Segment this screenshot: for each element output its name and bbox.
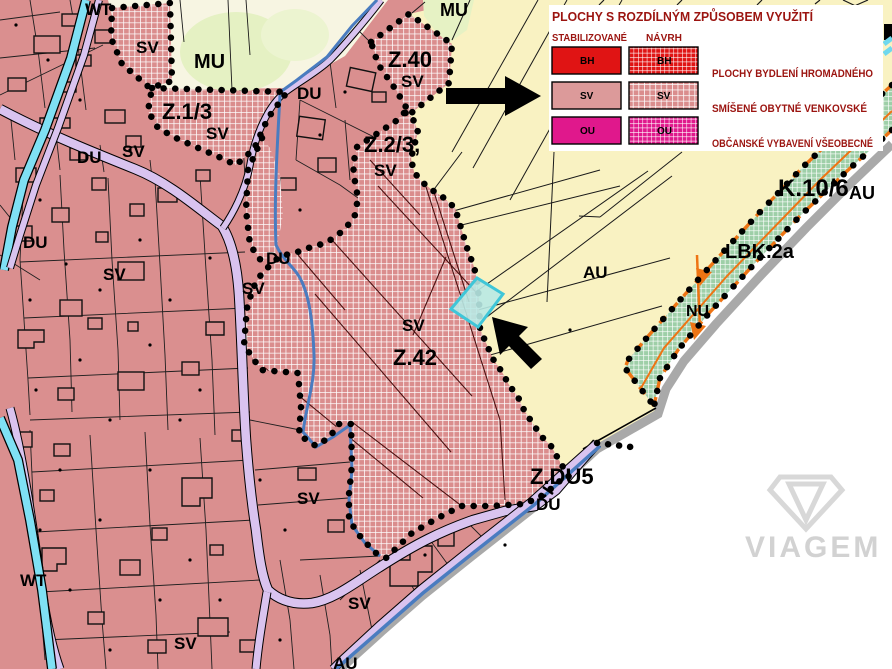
svg-text:SV: SV [297, 489, 320, 508]
svg-text:SV: SV [401, 72, 424, 91]
svg-text:PLOCHY S ROZDÍLNÝM ZPŮSOBEM VY: PLOCHY S ROZDÍLNÝM ZPŮSOBEM VYUŽITÍ [552, 8, 814, 24]
svg-text:MU: MU [440, 0, 468, 20]
svg-text:K.10/6: K.10/6 [778, 175, 849, 202]
svg-text:DU: DU [536, 495, 561, 514]
svg-text:STABILIZOVANÉ: STABILIZOVANÉ [552, 31, 627, 44]
svg-text:SV: SV [122, 142, 145, 161]
svg-text:SV: SV [657, 91, 671, 102]
svg-text:LBK.2a: LBK.2a [725, 241, 795, 263]
svg-text:MU: MU [194, 51, 225, 73]
svg-text:DU: DU [297, 84, 322, 103]
svg-text:SV: SV [174, 634, 197, 653]
svg-text:Z.DU5: Z.DU5 [530, 464, 594, 489]
svg-text:SMÍŠENÉ OBYTNÉ VENKOVSKÉ: SMÍŠENÉ OBYTNÉ VENKOVSKÉ [712, 102, 867, 115]
svg-text:Z.40: Z.40 [388, 47, 432, 72]
svg-text:Z.2/3,: Z.2/3, [364, 132, 420, 157]
svg-text:NÁVRH: NÁVRH [646, 31, 682, 44]
svg-text:Z.42: Z.42 [393, 345, 437, 370]
svg-text:SV: SV [402, 316, 425, 335]
svg-text:SV: SV [103, 265, 126, 284]
svg-text:OBČANSKÉ VYBAVENÍ VŠEOBECNÉ: OBČANSKÉ VYBAVENÍ VŠEOBECNÉ [712, 137, 873, 150]
svg-text:SV: SV [206, 124, 229, 143]
svg-text:WT: WT [85, 0, 112, 19]
svg-text:PLOCHY BYDLENÍ HROMADNÉHO: PLOCHY BYDLENÍ HROMADNÉHO [712, 67, 873, 80]
svg-text:SV: SV [348, 594, 371, 613]
svg-text:SV: SV [136, 38, 159, 57]
svg-text:VIAGEM: VIAGEM [745, 531, 881, 564]
svg-text:SV: SV [374, 161, 397, 180]
svg-text:NU: NU [686, 303, 709, 320]
svg-text:SV: SV [580, 91, 594, 102]
svg-text:OU: OU [580, 126, 595, 137]
svg-text:AU: AU [583, 263, 608, 282]
svg-text:DU: DU [266, 249, 291, 268]
svg-text:DU: DU [23, 233, 48, 252]
svg-text:BH: BH [580, 56, 594, 67]
svg-text:BH: BH [657, 56, 671, 67]
svg-text:AU: AU [333, 654, 358, 669]
svg-text:SV: SV [242, 279, 265, 298]
svg-text:DU: DU [77, 148, 102, 167]
svg-text:WT: WT [20, 571, 47, 590]
svg-text:Z.1/3: Z.1/3 [162, 99, 212, 124]
svg-text:AU: AU [849, 183, 875, 203]
svg-text:OU: OU [657, 126, 672, 137]
